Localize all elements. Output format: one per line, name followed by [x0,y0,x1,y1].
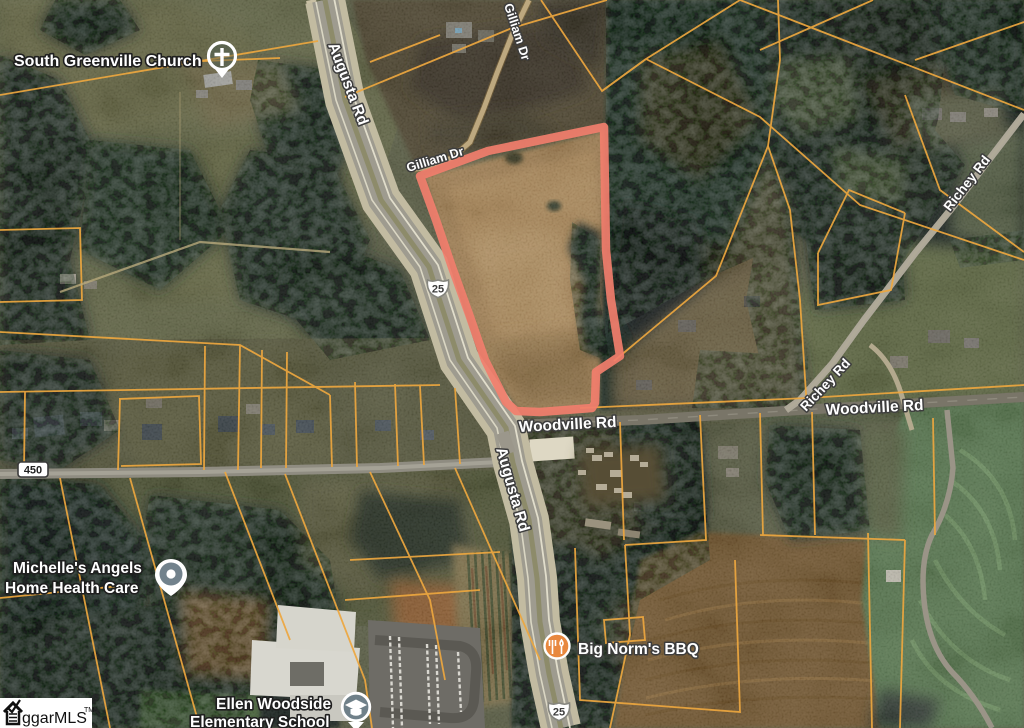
svg-text:450: 450 [24,465,42,477]
svg-text:Big Norm's BBQ: Big Norm's BBQ [578,641,699,658]
svg-text:South Greenville Church: South Greenville Church [14,53,202,70]
svg-text:ggarMLS: ggarMLS [22,710,87,727]
svg-text:Michelle's Angels: Michelle's Angels [13,560,142,577]
svg-text:Elementary School: Elementary School [190,714,330,728]
svg-text:Ellen Woodside: Ellen Woodside [216,696,331,713]
svg-text:Home Health Care: Home Health Care [5,580,139,597]
svg-text:TM: TM [84,707,94,714]
svg-text:25: 25 [553,707,565,719]
svg-text:25: 25 [432,284,444,296]
